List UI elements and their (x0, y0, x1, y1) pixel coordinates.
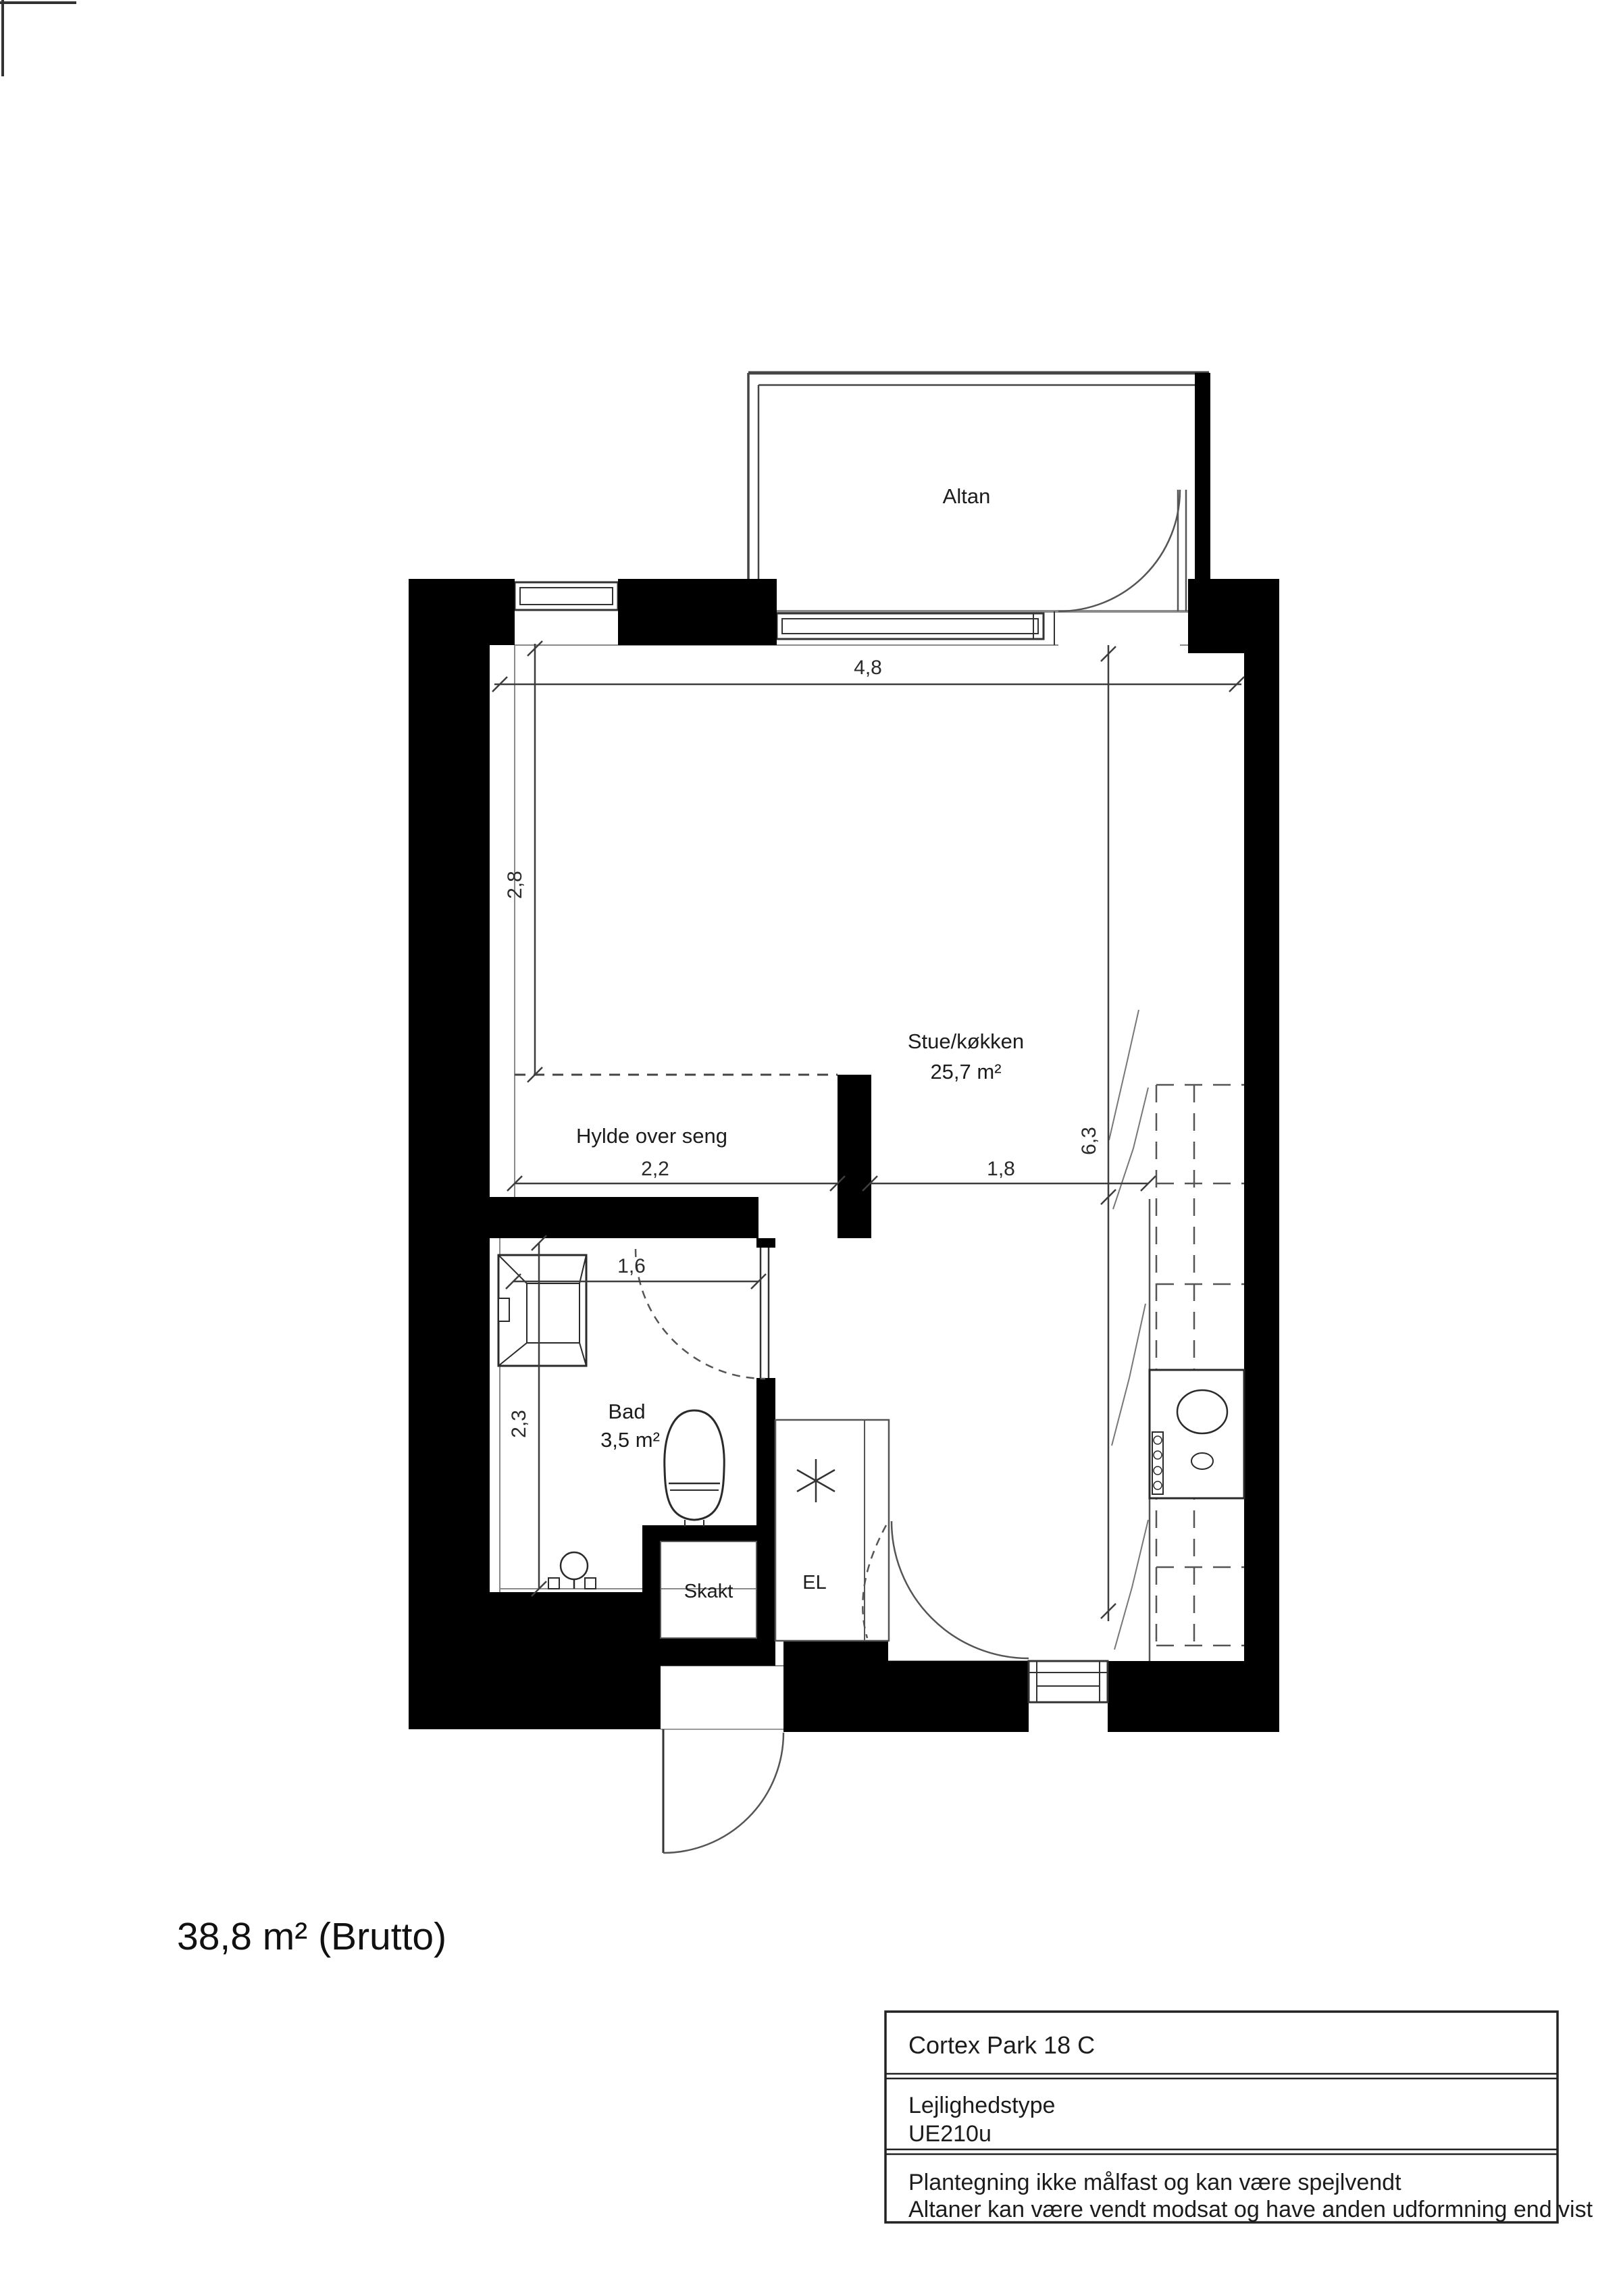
kitchen-sink (1177, 1390, 1227, 1433)
bath-door (636, 1248, 769, 1379)
left-wall (409, 579, 490, 1729)
bath-door-swing-arc (636, 1249, 765, 1379)
right-wall (1244, 579, 1279, 1732)
toilet (665, 1410, 724, 1527)
light-point-icon (797, 1459, 835, 1502)
dim-top-width: 4,8 (854, 657, 882, 679)
title-block-type-label: Lejlighedstype (908, 2093, 1055, 2118)
overhead-cabinets-dashed (1156, 1085, 1244, 1646)
el-door-swing-arc (863, 1525, 886, 1638)
title-block-note-2: Altaner kan være vendt modsat og have an… (908, 2197, 1593, 2222)
bottom-wall-right (1108, 1661, 1279, 1732)
alcove-stub-wall (838, 1075, 871, 1238)
balcony-label: Altan (943, 484, 991, 508)
window-small-top (515, 582, 618, 610)
balcony-door (1058, 490, 1186, 611)
dim-hall-width: 1,8 (987, 1158, 1015, 1180)
window-long-top (777, 611, 1054, 645)
shaft-bottom-wall (661, 1638, 775, 1666)
bottom-wall-mid (888, 1661, 1029, 1732)
title-block-note-1: Plantegning ikke målfast og kan være spe… (908, 2170, 1401, 2195)
dim-bath-height: 2,3 (508, 1410, 530, 1438)
alcove-label: Hylde over seng (576, 1124, 727, 1148)
bath-right-wall (756, 1378, 775, 1666)
kitchen-appliances (1150, 1370, 1244, 1498)
title-block: Cortex Park 18 C Lejlighedstype UE210u P… (885, 2012, 1593, 2222)
dim-bath-width: 1,6 (617, 1255, 646, 1277)
title-block-address: Cortex Park 18 C (908, 2031, 1095, 2059)
bottom-wall-left (409, 1623, 661, 1729)
balcony-right-wall (1195, 373, 1210, 611)
interior-door-swing-arc (892, 1521, 1029, 1658)
top-wall-pier (618, 579, 777, 645)
title-block-type-value: UE210u (908, 2121, 992, 2147)
dim-alcove-height: 2,8 (504, 871, 526, 899)
bath-area: 3,5 m² (600, 1428, 660, 1452)
entrance-door-swing-arc (663, 1733, 783, 1853)
floor-drain-icon (548, 1552, 596, 1589)
dim-alcove-width: 2,2 (641, 1158, 669, 1180)
total-area-label: 38,8 m² (Brutto) (177, 1915, 446, 1958)
balcony-door-swing-arc (1058, 490, 1180, 611)
bath-label: Bad (608, 1400, 645, 1423)
alcove-wall (409, 1197, 758, 1238)
bath-doorframe-top (756, 1238, 775, 1248)
bath-sink (498, 1255, 586, 1366)
kitchen-counter (1109, 1010, 1244, 1661)
shaft-label: Skakt (684, 1581, 734, 1602)
top-wall-corner (409, 579, 515, 645)
living-room-label: Stue/køkken (908, 1029, 1024, 1053)
living-room-area: 25,7 m² (930, 1060, 1001, 1083)
break-lines (1109, 1010, 1148, 1650)
bath-sink-faucet (498, 1298, 509, 1321)
page-corner-mark-icon (0, 0, 76, 76)
shaft-top-wall (642, 1525, 775, 1541)
bottom-wall-entry-pier (783, 1641, 888, 1732)
wall-lining (500, 645, 1244, 1729)
window-bottom (1029, 1661, 1108, 1702)
dim-interior-height: 6,3 (1078, 1127, 1100, 1155)
floor-plan-drawing: Altan Stue/køkken 25,7 m² Hylde over sen… (0, 0, 1621, 2296)
bath-bottom-wall (490, 1592, 661, 1623)
floor-plan-page: Altan Stue/køkken 25,7 m² Hylde over sen… (0, 0, 1621, 2296)
electrical-label: EL (802, 1572, 826, 1593)
el-closet (775, 1420, 889, 1641)
